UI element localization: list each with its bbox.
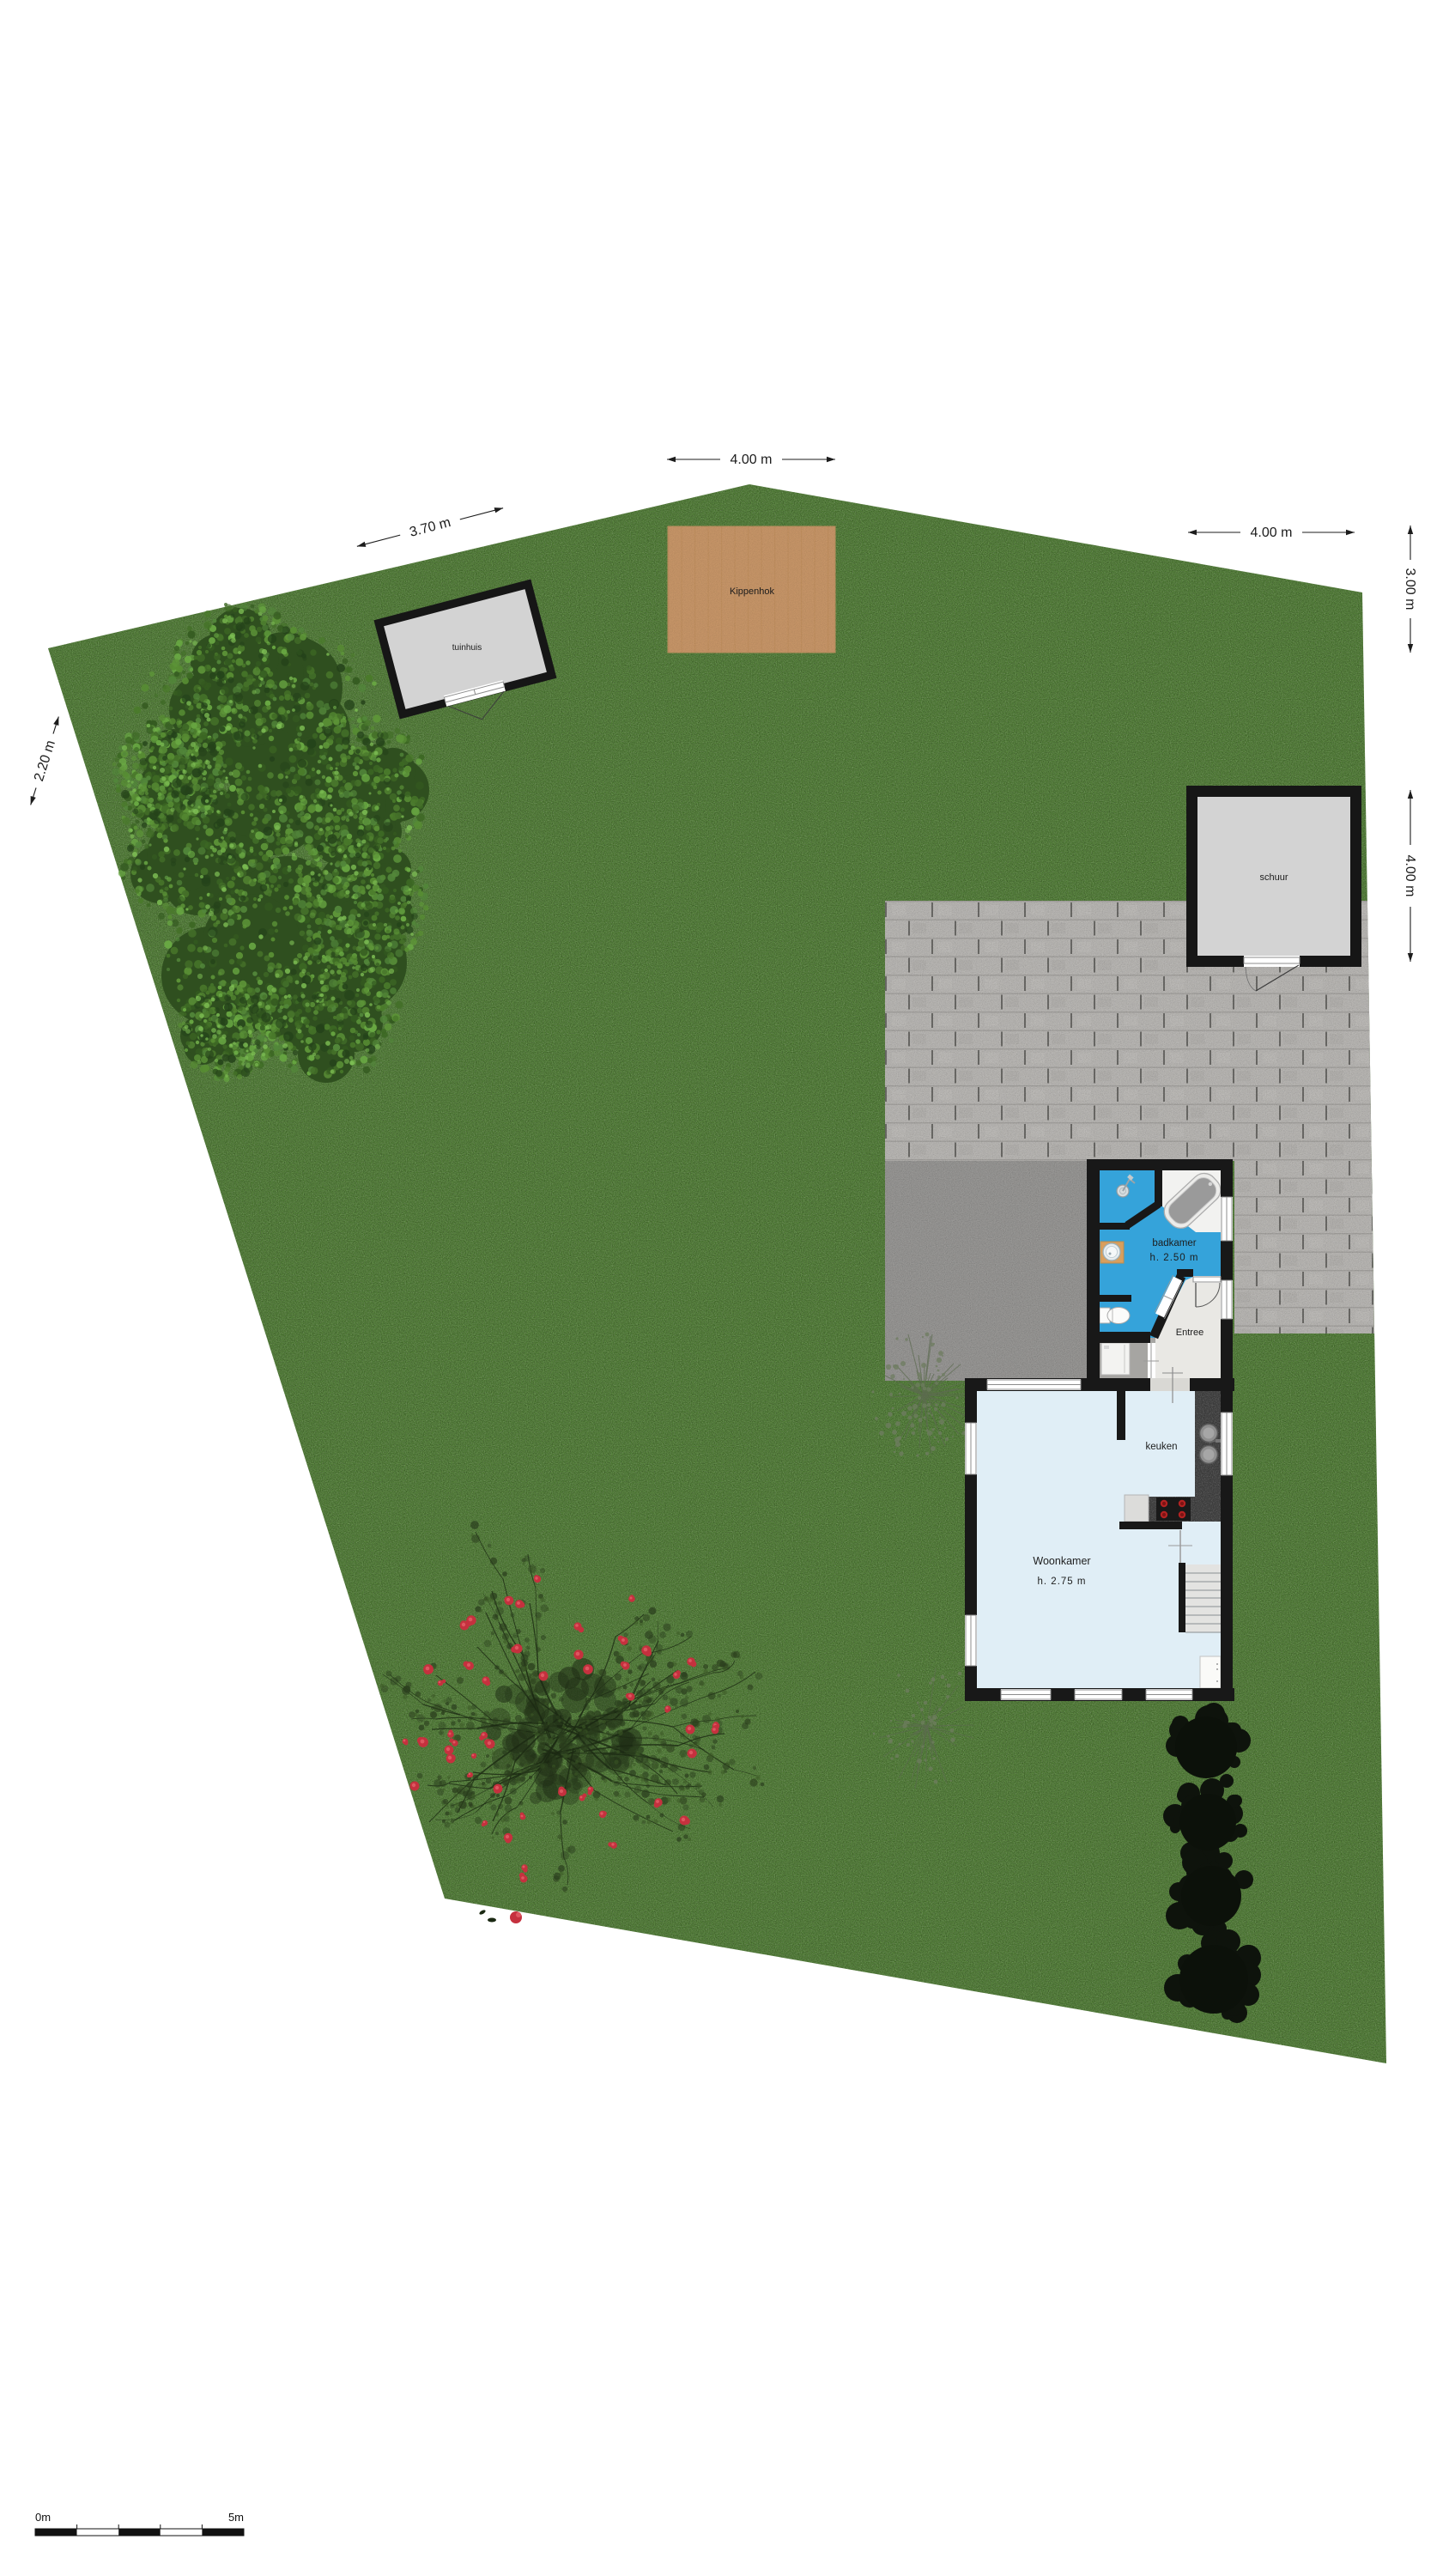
svg-text:4.00 m: 4.00 m bbox=[1403, 855, 1417, 897]
svg-text:5m: 5m bbox=[228, 2511, 244, 2524]
svg-text:h. 2.75 m: h. 2.75 m bbox=[1038, 1577, 1087, 1587]
svg-text:4.00 m: 4.00 m bbox=[1251, 526, 1293, 540]
svg-text:Kippenhok: Kippenhok bbox=[730, 586, 774, 597]
svg-text:Woonkamer: Woonkamer bbox=[1033, 1555, 1090, 1567]
svg-text:schuur: schuur bbox=[1259, 872, 1288, 883]
svg-text:Entree: Entree bbox=[1176, 1327, 1203, 1338]
svg-text:0m: 0m bbox=[35, 2511, 51, 2524]
svg-text:keuken: keuken bbox=[1145, 1442, 1177, 1452]
svg-text:h. 2.50 m: h. 2.50 m bbox=[1150, 1253, 1199, 1263]
svg-text:3.00 m: 3.00 m bbox=[1403, 568, 1417, 611]
svg-text:tuinhuis: tuinhuis bbox=[452, 643, 482, 653]
svg-text:4.00 m: 4.00 m bbox=[731, 453, 773, 467]
svg-text:badkamer: badkamer bbox=[1152, 1238, 1196, 1249]
